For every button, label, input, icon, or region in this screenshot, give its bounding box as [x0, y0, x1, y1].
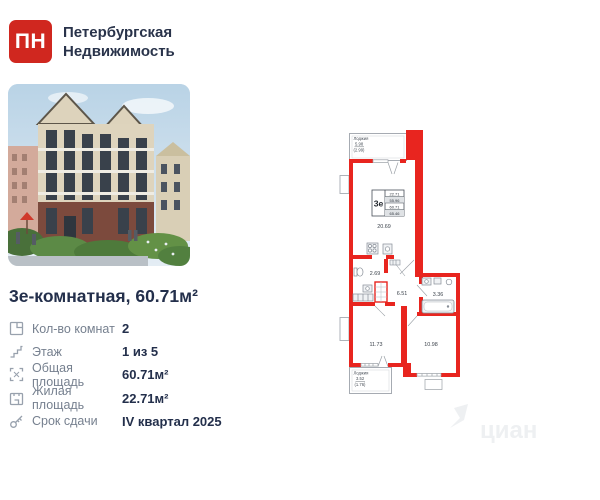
- loggia-bottom: Лоджия 3.52 (1.76): [350, 368, 392, 394]
- apartment-stamp: 3е 22.71 55.96 60.71 65.46: [372, 190, 404, 216]
- detail-row-floor: Этаж 1 из 5: [9, 340, 229, 363]
- brand-header: ПН Петербургская Недвижимость: [9, 20, 175, 63]
- detail-row-total-area: Общая площадь 60.71м²: [9, 363, 229, 386]
- vent-shaft: [375, 282, 387, 302]
- room-hall-area: 6.51: [397, 291, 408, 297]
- detail-label: Кол-во комнат: [32, 322, 116, 336]
- cian-watermark: циан: [446, 402, 556, 448]
- detail-value: 1 из 5: [122, 344, 158, 359]
- room-bedroom2-area: 10.98: [424, 342, 438, 348]
- svg-text:Лоджия: Лоджия: [354, 136, 369, 141]
- room-wc-area: 2.69: [370, 271, 381, 277]
- brand-logo[interactable]: ПН: [9, 20, 52, 63]
- wc-sink-icon: [363, 285, 372, 292]
- svg-text:(1.76): (1.76): [355, 382, 367, 387]
- page-title: 3е-комнатная, 60.71м²: [9, 286, 198, 307]
- brand-name: Петербургская Недвижимость: [63, 23, 175, 61]
- room-bathroom-area: 3.36: [433, 292, 444, 298]
- detail-value: 60.71м²: [122, 367, 168, 382]
- svg-text:22.71: 22.71: [389, 191, 400, 196]
- total-area-icon: [9, 367, 25, 383]
- svg-text:Лоджия: Лоджия: [354, 371, 369, 376]
- detail-label: Срок сдачи: [32, 414, 116, 428]
- svg-text:55.96: 55.96: [389, 198, 400, 203]
- detail-value: 22.71м²: [122, 391, 168, 406]
- svg-text:65.46: 65.46: [389, 211, 400, 216]
- radiator-icon: [390, 260, 400, 265]
- kitchen-stove-icon: [367, 243, 378, 254]
- washer-row-icon: [353, 294, 373, 301]
- walls: [349, 130, 460, 377]
- detail-label: Этаж: [32, 345, 116, 359]
- building-photo: [8, 84, 190, 266]
- svg-text:3е: 3е: [374, 199, 384, 209]
- toilet-icon: [354, 268, 363, 276]
- floor-icon: [9, 344, 25, 360]
- detail-row-rooms: Кол-во комнат 2: [9, 317, 229, 340]
- brand-name-line1: Петербургская: [63, 23, 175, 42]
- bath-sink-icon: [422, 278, 452, 285]
- rooms-icon: [9, 321, 25, 337]
- living-area-icon: [9, 390, 25, 406]
- details-list: Кол-во комнат 2 Этаж 1 из 5 Общая площад…: [9, 317, 229, 433]
- brand-logo-text: ПН: [15, 30, 46, 54]
- svg-text:3.52: 3.52: [356, 376, 365, 381]
- kitchen-sink-icon: [383, 244, 392, 254]
- detail-value: IV квартал 2025: [122, 414, 222, 429]
- bathtub-icon: [422, 300, 454, 313]
- loggia-top: Лоджия 5.98 (2.99): [350, 134, 407, 161]
- svg-text:циан: циан: [480, 417, 537, 444]
- floor-plan: Лоджия 5.98 (2.99): [330, 110, 480, 430]
- left-niches: [340, 176, 349, 341]
- key-icon: [9, 413, 25, 429]
- floor-plan-drawing: Лоджия 5.98 (2.99): [330, 110, 480, 430]
- svg-text:5.98: 5.98: [355, 142, 364, 147]
- detail-row-living-area: Жилая площадь 22.71м²: [9, 387, 229, 410]
- detail-label: Жилая площадь: [32, 384, 116, 412]
- brand-name-line2: Недвижимость: [63, 42, 175, 61]
- svg-text:(2.99): (2.99): [354, 148, 366, 153]
- room-bedroom1-area: 11.73: [369, 342, 382, 348]
- room-kitchen-living-area: 20.69: [377, 224, 391, 230]
- building-photo-art: [8, 84, 190, 266]
- detail-value: 2: [122, 321, 129, 336]
- svg-text:60.71: 60.71: [389, 204, 400, 209]
- detail-row-deadline: Срок сдачи IV квартал 2025: [9, 410, 229, 433]
